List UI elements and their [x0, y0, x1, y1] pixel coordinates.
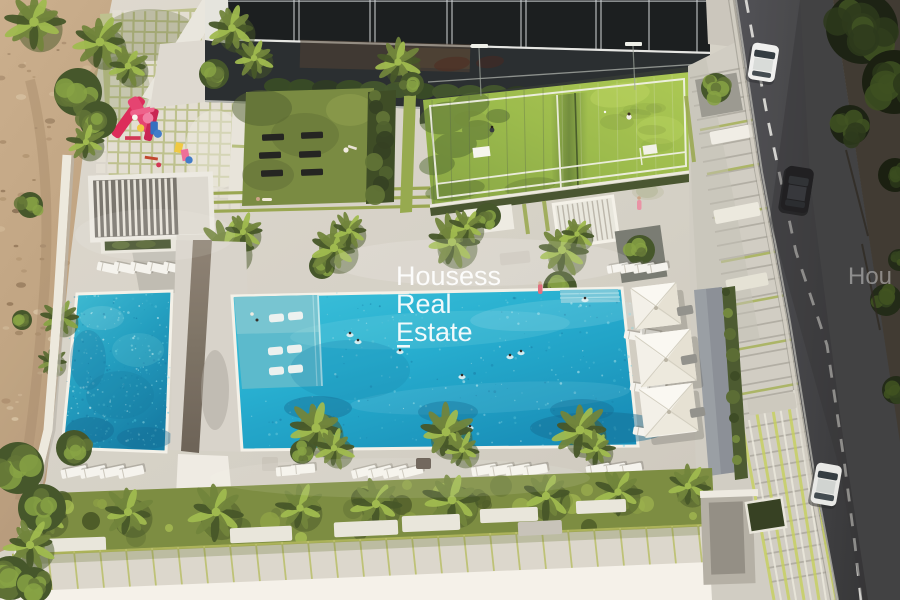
svg-text:Hou: Hou	[848, 263, 892, 290]
svg-text:Real: Real	[396, 289, 452, 319]
svg-text:Housess: Housess	[396, 261, 501, 291]
svg-text:Estate: Estate	[396, 317, 473, 347]
